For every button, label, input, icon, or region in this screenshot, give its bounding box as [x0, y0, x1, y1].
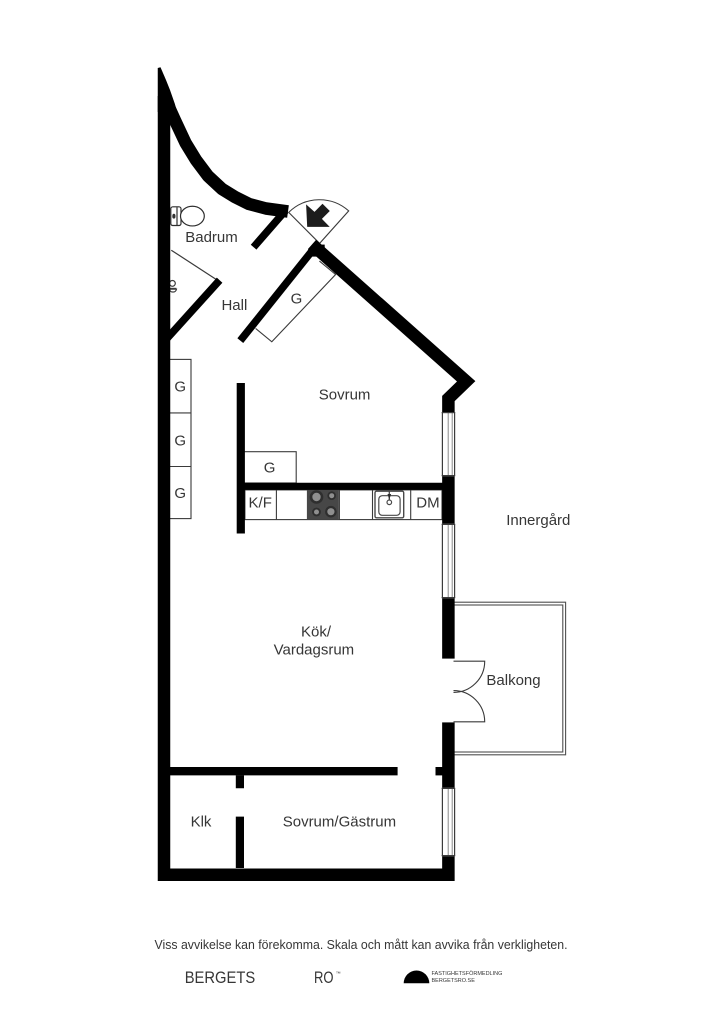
svg-text:BERGETS: BERGETS — [185, 969, 256, 987]
svg-text:BERGETSRO.SE: BERGETSRO.SE — [432, 978, 476, 984]
svg-text:G: G — [291, 290, 303, 307]
svg-text:Innergård: Innergård — [506, 512, 570, 529]
svg-text:DM: DM — [416, 494, 439, 511]
svg-text:Hall: Hall — [221, 297, 247, 314]
svg-text:FASTIGHETSFÖRMEDLING: FASTIGHETSFÖRMEDLING — [432, 970, 503, 977]
svg-text:Sovrum/Gästrum: Sovrum/Gästrum — [283, 813, 396, 830]
svg-text:G: G — [174, 485, 186, 502]
svg-text:G: G — [174, 432, 186, 449]
svg-text:Vardagsrum: Vardagsrum — [274, 641, 355, 658]
svg-text:G: G — [174, 379, 186, 396]
svg-text:K/F: K/F — [249, 494, 272, 511]
svg-text:™: ™ — [336, 971, 341, 977]
svg-text:Balkong: Balkong — [486, 672, 540, 689]
svg-text:Kök/: Kök/ — [301, 624, 332, 641]
svg-text:Badrum: Badrum — [185, 229, 238, 246]
svg-text:Klk: Klk — [191, 813, 212, 830]
svg-text:RO: RO — [314, 969, 334, 987]
svg-text:G: G — [264, 460, 276, 477]
svg-text:Sovrum: Sovrum — [319, 387, 371, 404]
svg-text:Viss avvikelse kan förekomma.: Viss avvikelse kan förekomma. Skala och … — [155, 937, 568, 952]
